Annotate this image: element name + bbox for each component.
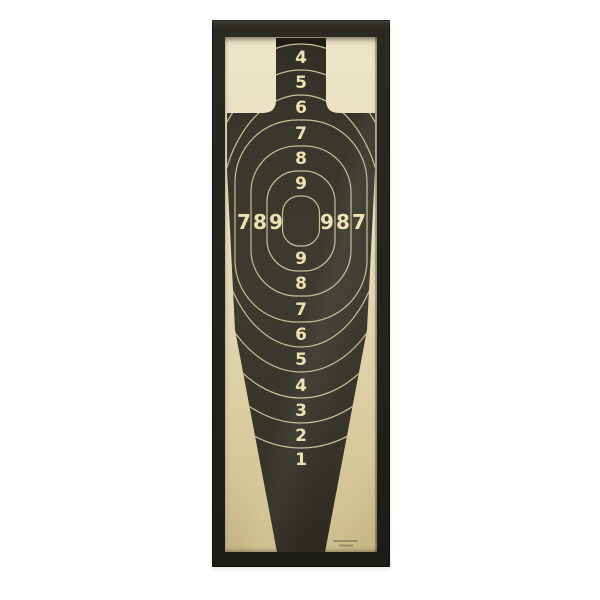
score-number: 9	[295, 249, 307, 269]
score-number: 8	[295, 274, 307, 294]
score-number: 9	[295, 174, 307, 194]
score-number: 8	[253, 210, 267, 234]
score-number: 2	[295, 426, 307, 446]
score-number: 4	[295, 48, 307, 68]
score-number: 6	[295, 325, 307, 345]
fine-print	[333, 540, 358, 547]
target-graphic: 4 5 6 7 8 9 7 8 9 9 8 7 9 8 7 6 5	[225, 37, 377, 552]
score-number: 7	[352, 210, 366, 234]
score-number: 7	[295, 300, 307, 320]
score-number: 9	[269, 210, 283, 234]
target-paper: 4 5 6 7 8 9 7 8 9 9 8 7 9 8 7 6 5	[225, 37, 377, 552]
product-photo: 4 5 6 7 8 9 7 8 9 9 8 7 9 8 7 6 5	[0, 0, 600, 600]
score-number: 5	[295, 73, 307, 93]
score-number: 7	[295, 124, 307, 144]
score-number: 3	[295, 401, 307, 421]
score-number: 5	[295, 350, 307, 370]
score-number: 7	[237, 210, 251, 234]
picture-frame: 4 5 6 7 8 9 7 8 9 9 8 7 9 8 7 6 5	[212, 20, 390, 567]
score-number: 6	[295, 98, 307, 118]
score-number: 8	[295, 149, 307, 169]
score-number: 4	[295, 376, 307, 396]
score-number: 1	[295, 450, 307, 470]
score-number: 9	[320, 210, 334, 234]
score-number: 8	[336, 210, 350, 234]
